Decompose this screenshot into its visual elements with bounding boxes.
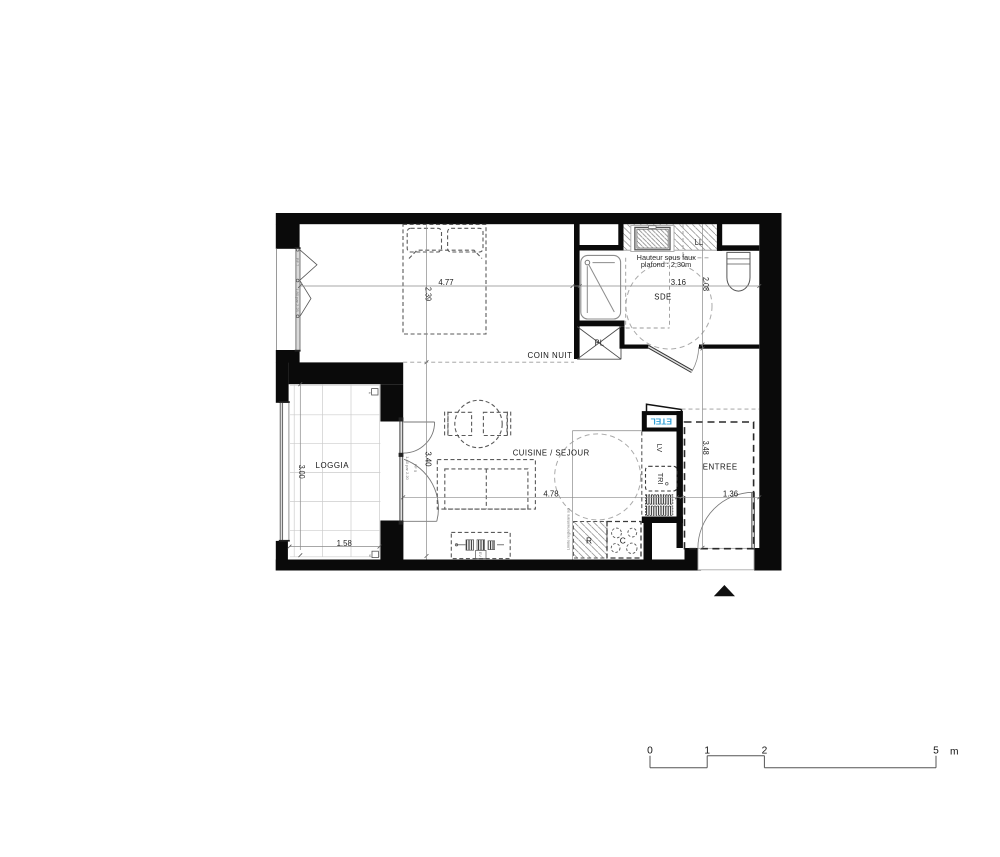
svg-text:plafond : 2,30m: plafond : 2,30m xyxy=(641,260,691,269)
svg-text:CUISINE / SEJOUR: CUISINE / SEJOUR xyxy=(513,447,590,457)
svg-text:3.48: 3.48 xyxy=(701,441,711,455)
svg-text:2.39: 2.39 xyxy=(424,287,434,301)
svg-text:Limite reglementaire sol: Limite reglementaire sol xyxy=(566,508,571,551)
svg-text:m: m xyxy=(950,747,959,758)
svg-text:TRI: TRI xyxy=(656,473,665,485)
svg-text:ETEL: ETEL xyxy=(650,416,672,425)
svg-text:1.80 par 2.25: 1.80 par 2.25 xyxy=(295,288,300,312)
svg-text:2: 2 xyxy=(762,746,768,757)
svg-text:1.36: 1.36 xyxy=(723,489,739,499)
svg-text:2.08: 2.08 xyxy=(701,277,711,291)
svg-text:0: 0 xyxy=(647,746,653,757)
svg-text:ENTREE: ENTREE xyxy=(703,461,738,471)
svg-text:LV: LV xyxy=(655,444,664,453)
svg-text:3.00: 3.00 xyxy=(297,465,307,479)
svg-text:EV: EV xyxy=(478,552,483,558)
svg-text:3.16: 3.16 xyxy=(671,277,687,287)
svg-text:R: R xyxy=(586,535,593,545)
svg-text:COIN NUIT: COIN NUIT xyxy=(528,350,573,360)
svg-text:1.40 par 2.20: 1.40 par 2.20 xyxy=(405,456,410,480)
svg-text:PF 5: PF 5 xyxy=(413,464,418,473)
svg-text:3.40: 3.40 xyxy=(423,452,433,467)
svg-text:1.58: 1.58 xyxy=(337,538,353,548)
svg-text:PL: PL xyxy=(595,337,605,347)
svg-text:4.78: 4.78 xyxy=(543,489,559,499)
svg-text:SDE: SDE xyxy=(654,292,672,302)
svg-text:LL: LL xyxy=(695,237,704,247)
svg-text:PF 7: PF 7 xyxy=(295,258,300,267)
svg-text:C: C xyxy=(620,536,627,546)
svg-text:LOGGIA: LOGGIA xyxy=(316,460,350,470)
svg-text:5: 5 xyxy=(933,746,939,757)
svg-text:4.77: 4.77 xyxy=(438,277,454,287)
svg-text:1: 1 xyxy=(704,746,710,757)
